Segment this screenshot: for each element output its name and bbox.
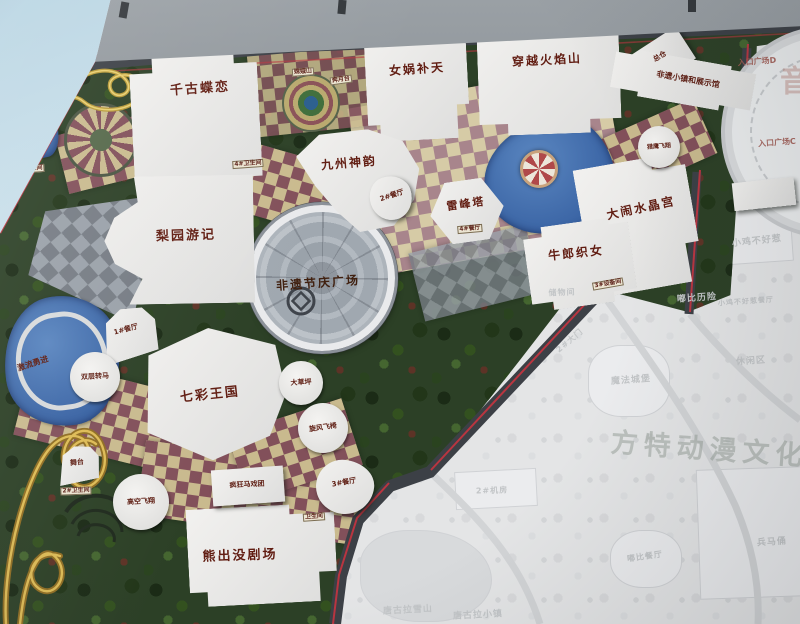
label-small: 高空飞翔 (127, 498, 155, 506)
label-small: 大草坪 (290, 379, 311, 387)
label-small: 2#餐厅 (379, 189, 405, 203)
label-chip: 卫生间 (303, 512, 326, 522)
park-map-photo: 方特动漫文化科音千古蝶恋女娲补天穿越火焰山九州神韵梨园游记雷峰塔大闹水晶宫牛郎织… (0, 0, 800, 624)
label-ghost: 嘟比餐厅 (627, 551, 664, 564)
label-small: 3#餐厅 (331, 477, 357, 488)
label-music: 音 (776, 65, 800, 103)
label-chip: 2#卫生间 (60, 486, 91, 495)
label-chip: 奔月台 (330, 75, 353, 86)
label-ghost: 唐古拉小镇 (453, 610, 503, 622)
label-ghost: 嘟比历险 (677, 293, 718, 305)
label-small: 旋风飞椅 (309, 423, 338, 434)
label-small: 激流勇进 (17, 355, 50, 372)
label-major: 雷峰塔 (446, 196, 486, 212)
label-ghost: 小鸡不好惹 (732, 235, 783, 249)
label-major: 牛郎织女 (548, 244, 605, 262)
frame-joint (688, 0, 696, 12)
label-small: 1#餐厅 (113, 323, 139, 336)
label-chip: 4#餐厅 (457, 224, 483, 234)
label-ghost: 2#机房 (476, 486, 509, 495)
label-ghost: 唐古拉雪山 (383, 605, 433, 617)
label-small: 疯狂马戏团 (229, 481, 264, 490)
label-chip: 3#设备间 (592, 277, 624, 290)
label-ghost: 休闲区 (736, 356, 767, 367)
label-entrance: 入口广场D (737, 57, 776, 68)
label-major: 九州神韵 (321, 155, 378, 172)
label-ghost: 2#大门 (555, 328, 585, 355)
label-small: 总仓 (652, 50, 668, 63)
frame-joint (337, 0, 346, 14)
label-major: 梨园游记 (156, 228, 216, 243)
label-ghost: 兵马俑 (757, 537, 788, 548)
label-ghost: 魔法城堡 (611, 375, 652, 387)
label-ghost: 小鸡不好惹餐厅 (718, 297, 774, 308)
label-major: 七彩王国 (179, 385, 240, 404)
label-small: 舞台 (70, 459, 85, 467)
label-chip: 4#卫生间 (232, 159, 264, 169)
map-labels: 方特动漫文化科音千古蝶恋女娲补天穿越火焰山九州神韵梨园游记雷峰塔大闹水晶宫牛郎织… (0, 0, 800, 624)
label-ghost: 储物间 (548, 289, 575, 298)
label-small: 非遗小镇和展示馆 (656, 71, 720, 90)
label-small: 猎鹰飞翔 (647, 143, 671, 151)
label-entrance: 入口广场C (758, 138, 796, 149)
label-chip: 嫦娥山 (292, 67, 315, 77)
label-watermark: 方特动漫文化科 (610, 429, 800, 472)
label-major: 熊出没剧场 (202, 548, 277, 564)
label-major: 大闹水晶宫 (606, 195, 677, 221)
label-plaza: 非遗节庆广场 (276, 274, 361, 292)
label-major: 女娲补天 (389, 61, 446, 77)
label-major: 穿越火焰山 (512, 52, 583, 68)
label-major: 千古蝶恋 (170, 80, 231, 97)
label-small: 双层转马 (81, 373, 109, 381)
